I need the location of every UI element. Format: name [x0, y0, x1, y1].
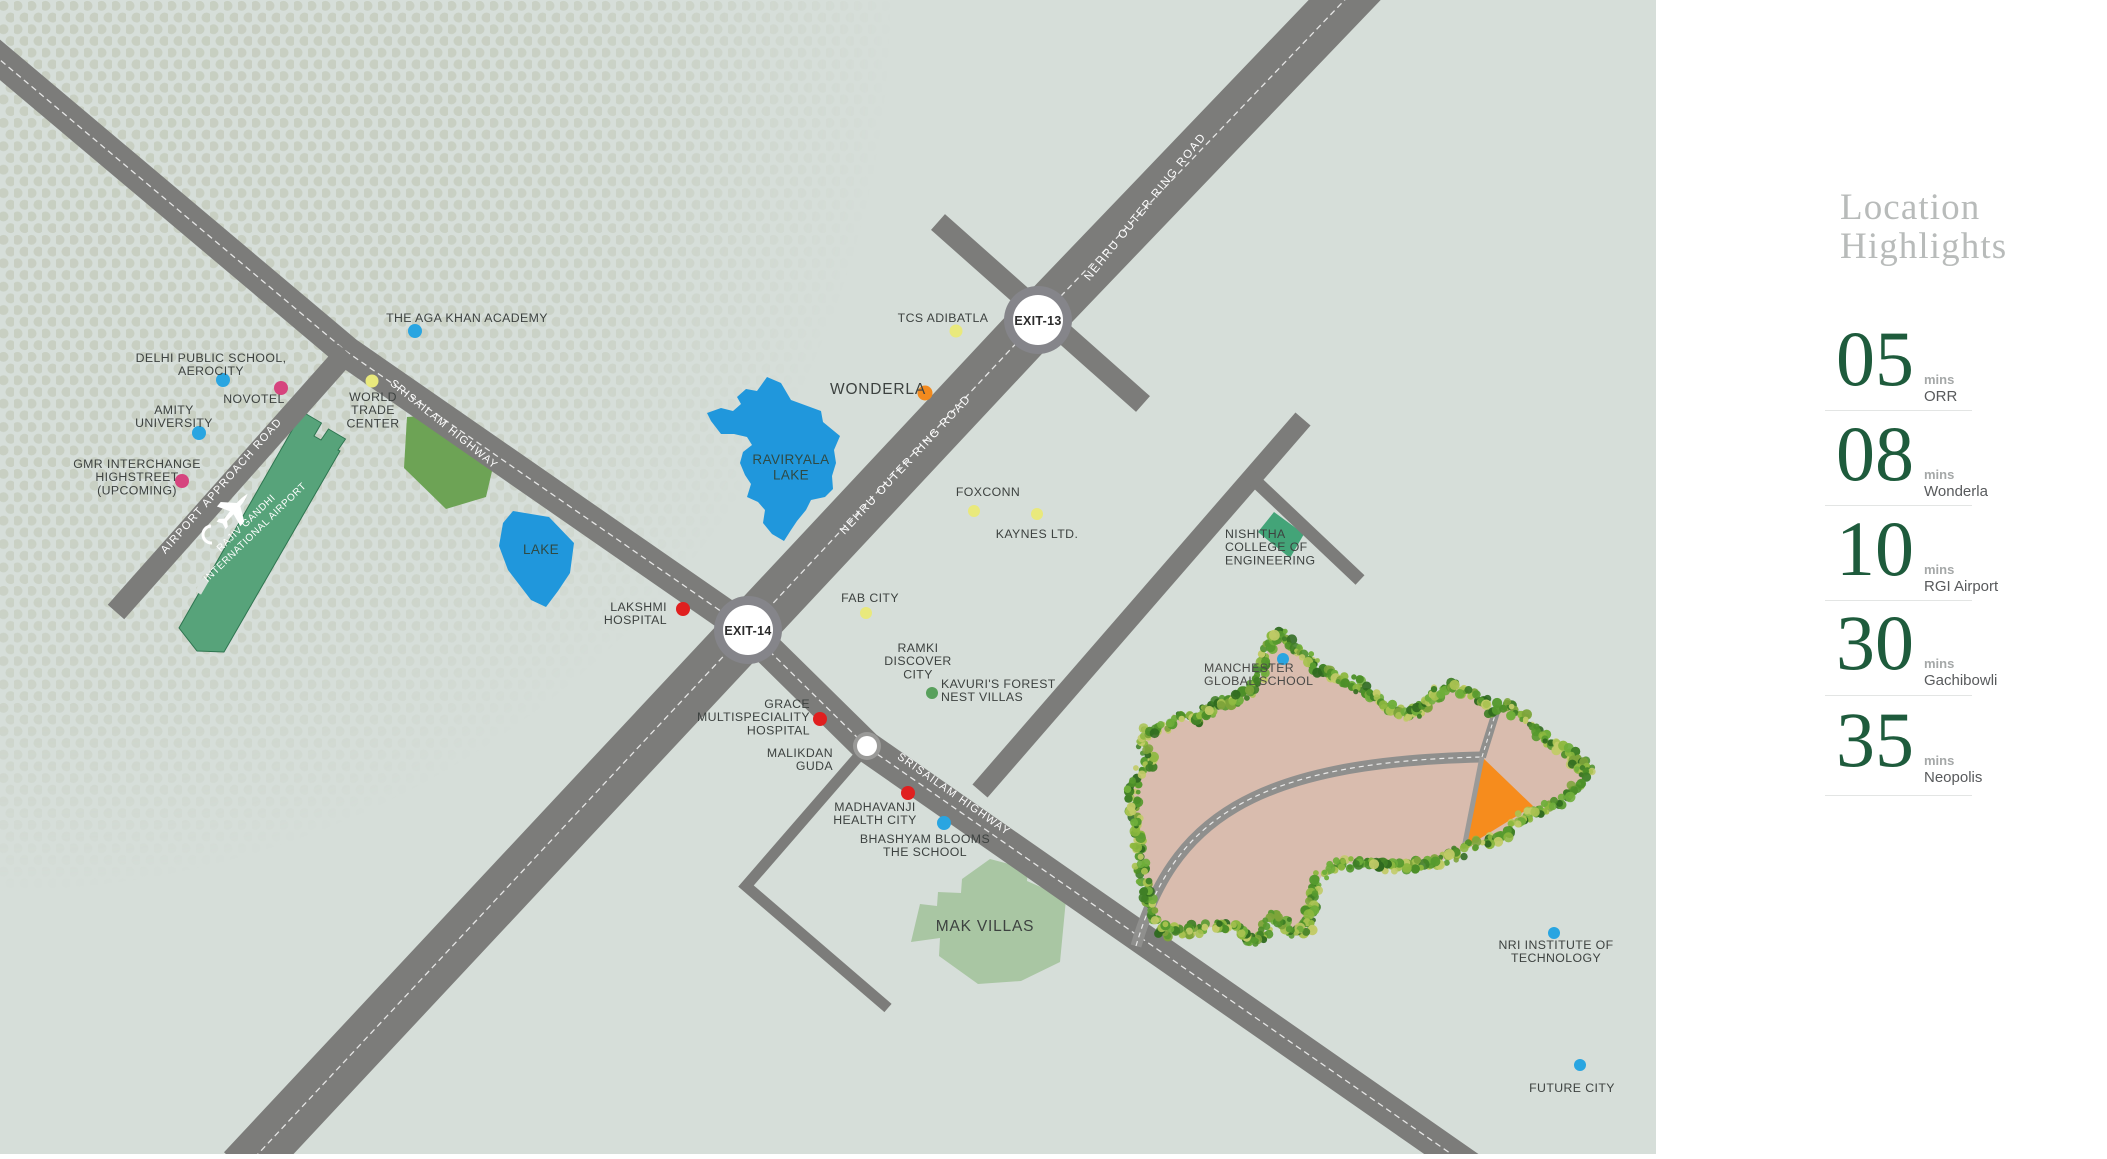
svg-text:MAK VILLAS: MAK VILLAS	[936, 918, 1034, 935]
svg-text:LAKE: LAKE	[523, 542, 559, 557]
svg-text:TCS ADIBATLA: TCS ADIBATLA	[898, 311, 989, 325]
svg-text:WONDERLA: WONDERLA	[830, 381, 926, 398]
svg-text:NOVOTEL: NOVOTEL	[223, 392, 285, 406]
svg-text:WORLDTRADECENTER: WORLDTRADECENTER	[347, 390, 400, 430]
svg-text:NRI INSTITUTE OFTECHNOLOGY: NRI INSTITUTE OFTECHNOLOGY	[1498, 938, 1613, 965]
svg-text:EXIT-14: EXIT-14	[724, 624, 771, 638]
svg-text:EXIT-13: EXIT-13	[1014, 314, 1061, 328]
svg-text:FAB CITY: FAB CITY	[841, 591, 899, 605]
svg-text:FUTURE CITY: FUTURE CITY	[1529, 1081, 1615, 1095]
svg-text:MADHAVANJIHEALTH CITY: MADHAVANJIHEALTH CITY	[833, 800, 916, 827]
svg-text:KAYNES LTD.: KAYNES LTD.	[996, 527, 1079, 541]
svg-text:FOXCONN: FOXCONN	[956, 485, 1020, 499]
svg-text:LAKSHMIHOSPITAL: LAKSHMIHOSPITAL	[604, 600, 667, 627]
svg-text:THE AGA KHAN ACADEMY: THE AGA KHAN ACADEMY	[386, 311, 548, 325]
